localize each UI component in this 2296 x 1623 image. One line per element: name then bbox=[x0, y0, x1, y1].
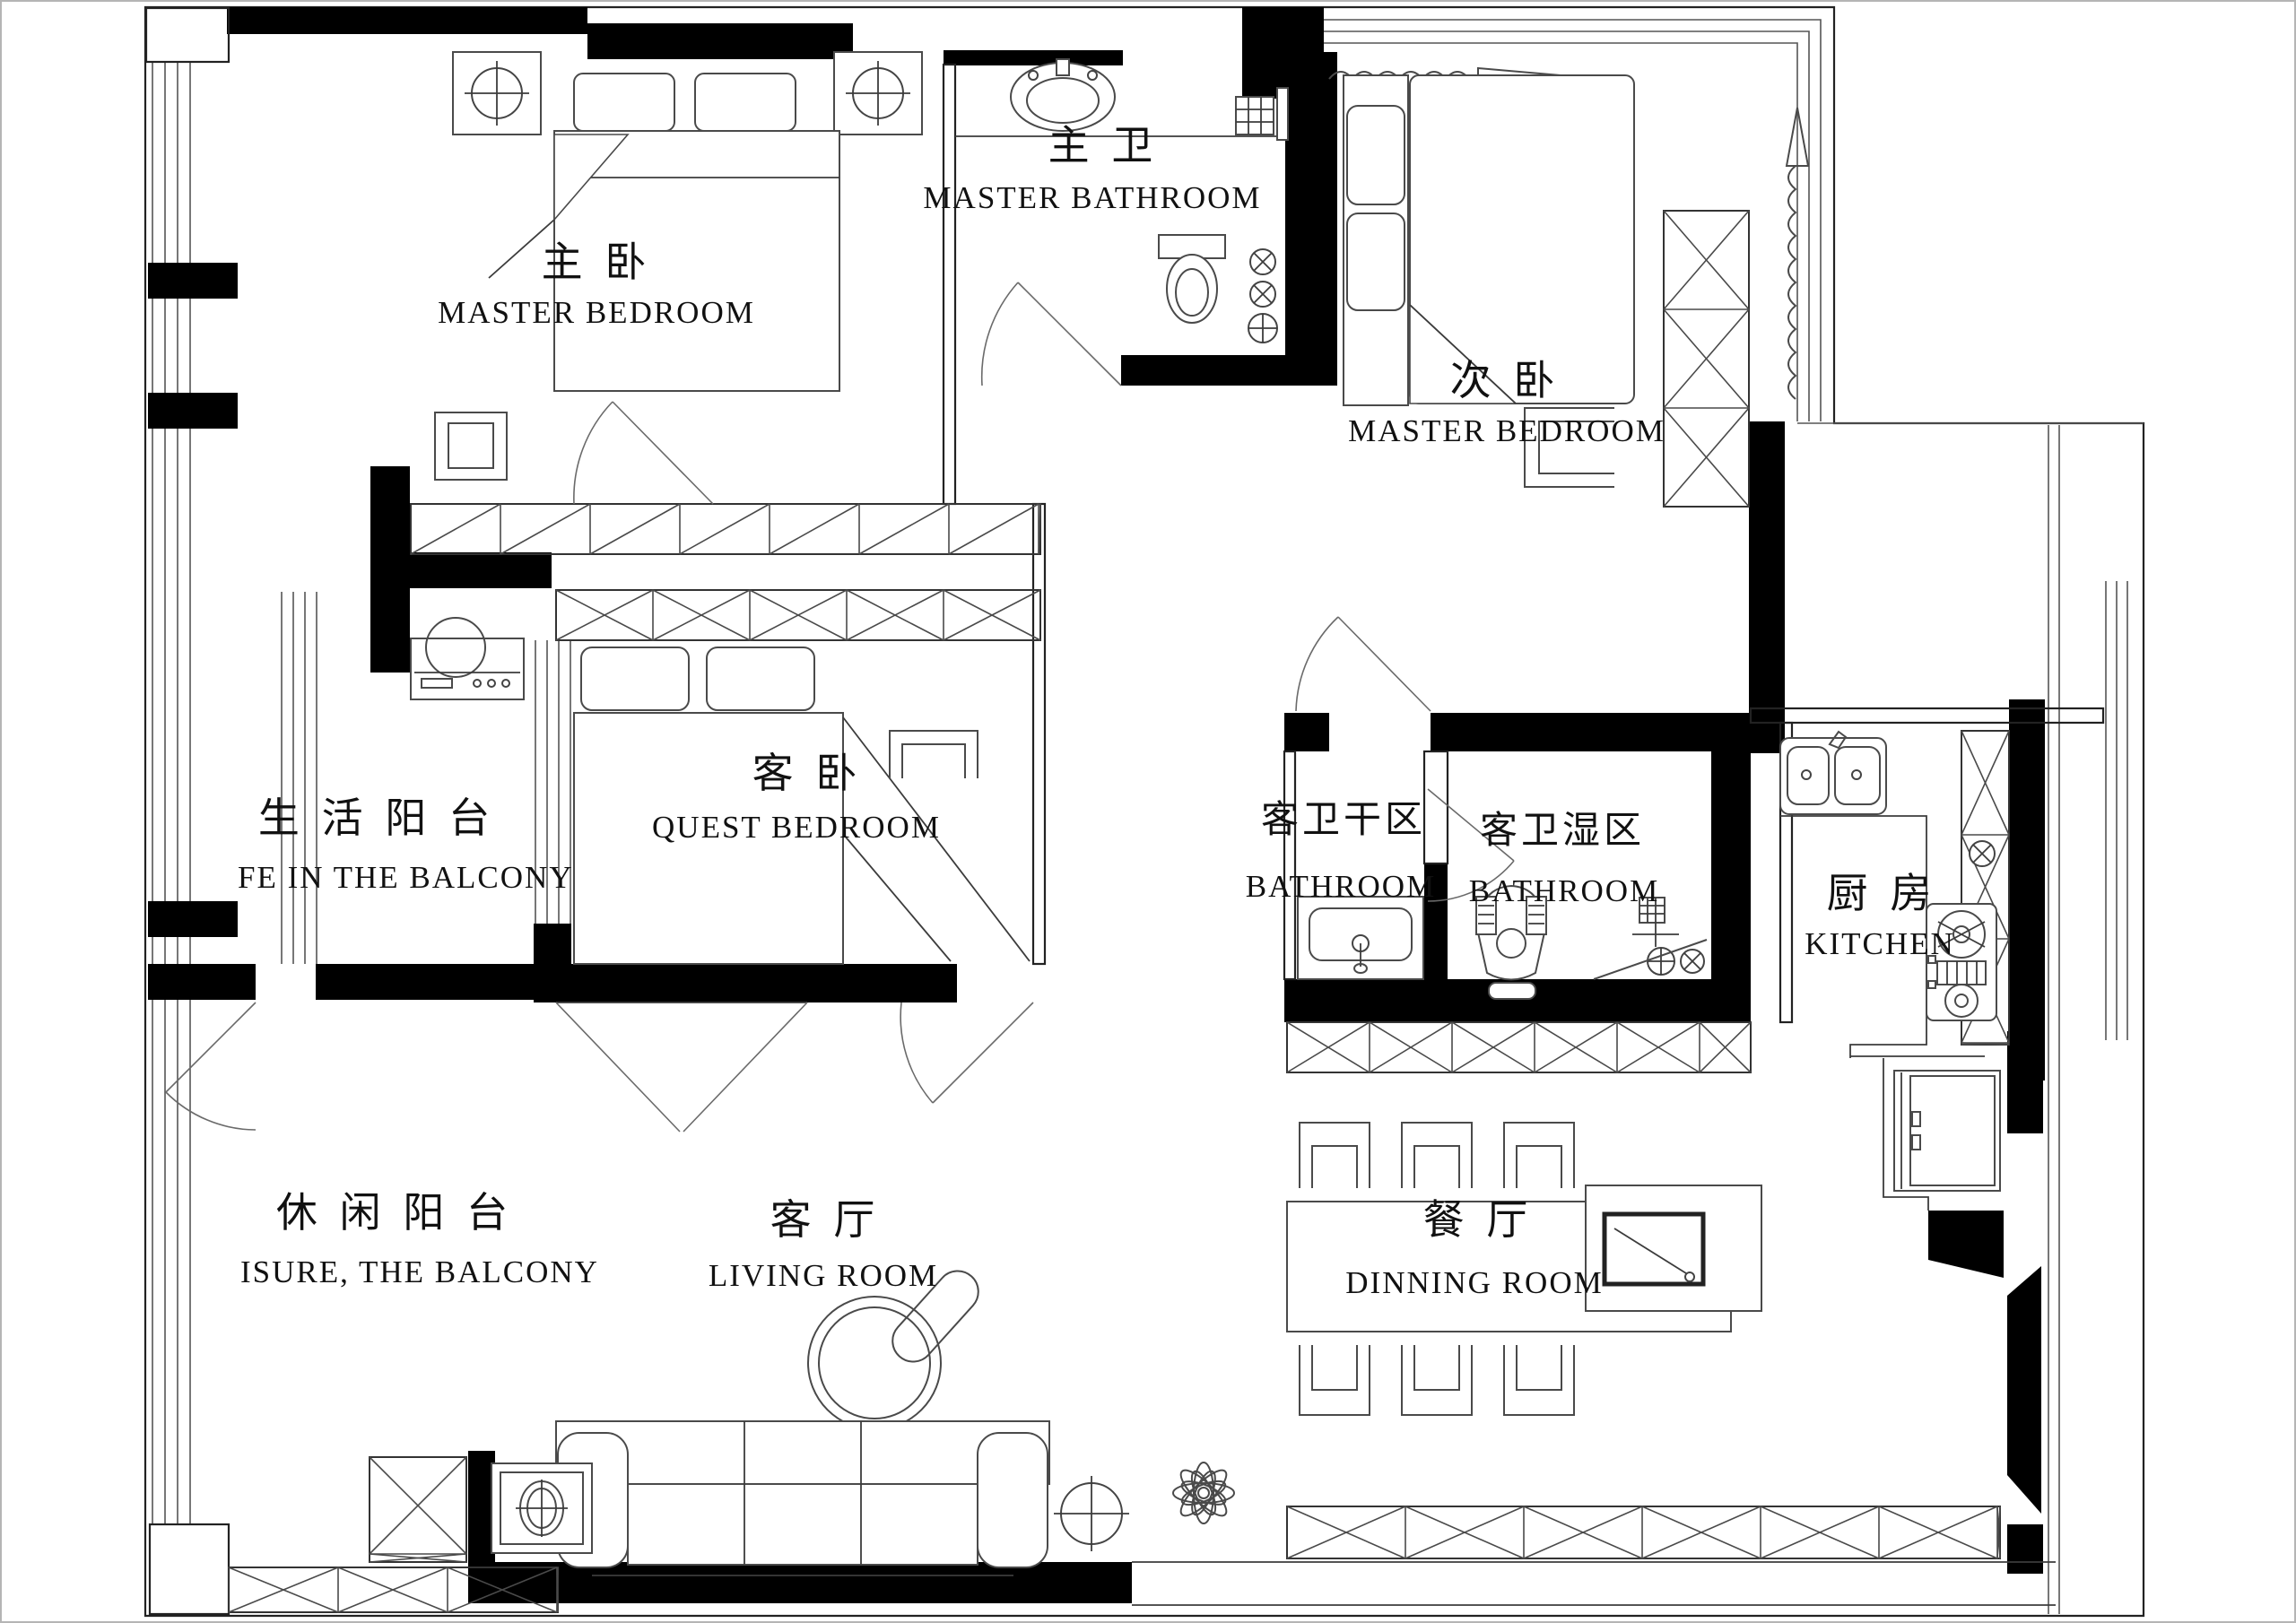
fridge bbox=[1894, 1071, 2000, 1191]
label-master-bathroom-zh: 主 卫 bbox=[1048, 122, 1159, 169]
label-kitchen-en: KITCHEN bbox=[1805, 926, 1955, 961]
label-master-bedroom-zh: 主 卧 bbox=[542, 239, 652, 285]
label-guest-bedroom-zh: 客 卧 bbox=[752, 750, 863, 796]
label-kitchen-zh: 厨 房 bbox=[1827, 870, 1937, 916]
label-bath-wet-zh: 客卫湿区 bbox=[1480, 809, 1645, 851]
label-dining-room-zh: 餐 厅 bbox=[1423, 1196, 1534, 1243]
label-master-bathroom-en: MASTER BATHROOM bbox=[923, 180, 1261, 215]
label-bath-dry-en: BATHROOM bbox=[1246, 869, 1436, 904]
label-living-room-zh: 客 厅 bbox=[770, 1196, 881, 1243]
sofa bbox=[556, 1421, 1049, 1575]
label-dining-room-en: DINNING ROOM bbox=[1345, 1265, 1603, 1300]
stove bbox=[1926, 904, 1996, 1020]
floor-plan-canvas: 主 卧 MASTER BEDROOM 主 卫 MASTER BATHROOM 次… bbox=[0, 0, 2296, 1623]
label-master-bedroom-en: MASTER BEDROOM bbox=[438, 295, 755, 330]
label-leisure-balcony-zh: 休 闲 阳 台 bbox=[276, 1189, 513, 1236]
label-guest-bedroom-en: QUEST BEDROOM bbox=[652, 810, 941, 845]
label-living-room-en: LIVING ROOM bbox=[709, 1258, 938, 1293]
label-bath-wet-en: BATHROOM bbox=[1469, 873, 1659, 908]
dry-bath-vanity bbox=[1298, 897, 1423, 979]
label-second-bedroom-en: MASTER BEDROOM bbox=[1348, 413, 1665, 448]
table-appliance bbox=[1586, 1185, 1761, 1311]
label-bath-dry-zh: 客卫干区 bbox=[1261, 798, 1426, 840]
label-life-balcony-zh: 生 活 阳 台 bbox=[258, 794, 495, 841]
label-life-balcony-en: FE IN THE BALCONY bbox=[238, 860, 574, 895]
label-leisure-balcony-en: ISURE, THE BALCONY bbox=[240, 1254, 599, 1289]
floor-plan-drawing: 主 卧 MASTER BEDROOM 主 卫 MASTER BATHROOM 次… bbox=[0, 0, 2296, 1623]
label-second-bedroom-zh: 次 卧 bbox=[1450, 357, 1561, 404]
side-table-lamp bbox=[491, 1463, 592, 1553]
